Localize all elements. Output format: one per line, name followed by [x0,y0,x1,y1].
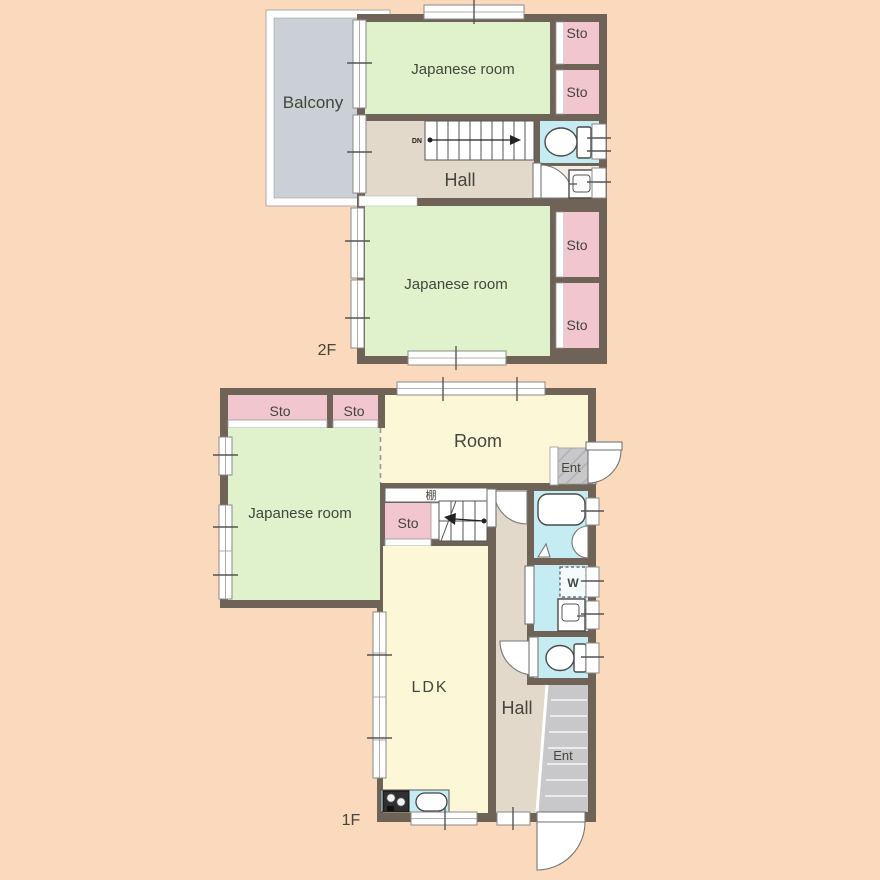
entrance-upper-door-arc [588,450,621,483]
hall-2f-label: Hall [444,170,475,190]
storage-label-2f-2: Sto [566,84,587,100]
storage-label-2f-4: Sto [566,317,587,333]
floor-label-1f: 1F [342,812,361,829]
balcony-label: Balcony [283,93,344,112]
kitchen-counter [381,790,449,812]
japanese-room-1f-label: Japanese room [248,505,351,522]
hall-1f-label: Hall [501,698,532,718]
floor-plan-drawing: DN [0,0,880,880]
washroom-sliding-door [525,566,534,624]
washing-machine-label: W [567,576,579,590]
washbasin-icon-1f [558,599,585,631]
floor-plan-page: DN [0,0,880,880]
bathtub-icon [538,494,585,525]
ldk-label: LDK [411,679,448,696]
toilet-icon-1f [546,644,586,672]
kitchen-sink-icon [416,793,447,811]
storage-label-1f-1: Sto [269,403,290,419]
front-door [537,812,585,870]
entrance-upper-door-leaf [586,442,622,450]
room-label: Room [454,431,502,451]
sliding-door-opening-2f [359,196,417,206]
stairs-down-label: DN [412,138,422,145]
storage-label-1f-2: Sto [343,403,364,419]
floor-label-2f: 2F [318,342,337,359]
japanese-room-top-label: Japanese room [411,61,514,78]
stove-icon [383,791,409,812]
western-room-1f-upper [385,395,588,428]
bathroom-1f [534,491,588,558]
entrance-upper-label: Ent [561,460,581,475]
storage-label-1f-3: Sto [397,515,418,531]
storage-label-2f-3: Sto [566,237,587,253]
toilet-door-leaf-1f [529,637,538,677]
toilet-icon-2f [545,127,591,158]
floor-plan-1f: UP [213,377,622,870]
washroom-1f [525,565,588,631]
staircase-2f: DN [412,121,534,160]
shelf-label: 棚 [426,488,437,502]
storage-label-2f-1: Sto [566,25,587,41]
washbasin-icon-2f [569,170,595,198]
japanese-room-bottom-label: Japanese room [404,276,507,293]
floor-plan-2f: DN [266,0,611,370]
entrance-lower-label: Ent [553,748,573,763]
shelf-box [385,488,489,502]
